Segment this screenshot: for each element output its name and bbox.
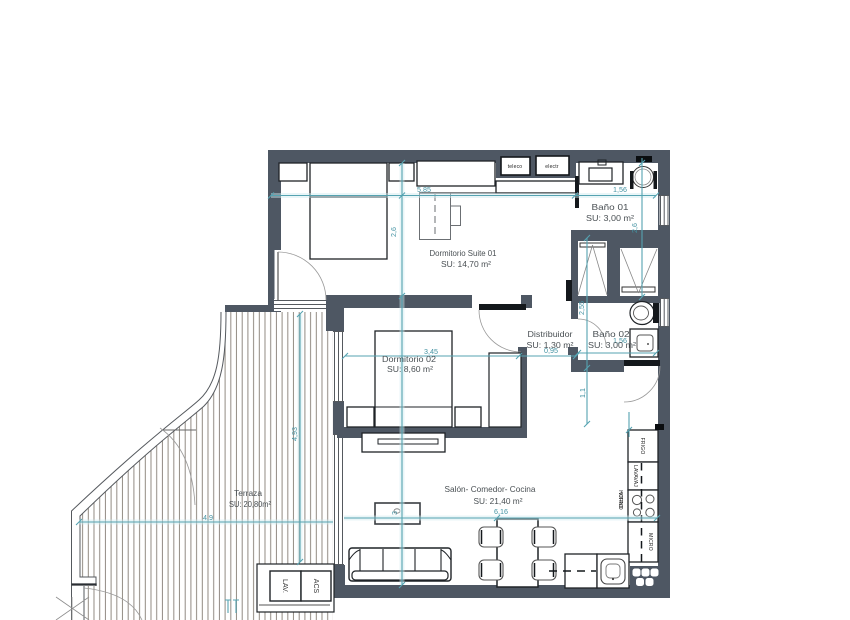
svg-text:SU: 3,00 m²: SU: 3,00 m² xyxy=(586,213,634,223)
svg-text:FRIGO: FRIGO xyxy=(639,438,645,455)
svg-text:Distribuidor: Distribuidor xyxy=(528,329,573,339)
svg-text:Terraza: Terraza xyxy=(234,488,262,498)
svg-text:4,93: 4,93 xyxy=(290,427,299,441)
svg-text:HORNO: HORNO xyxy=(617,490,623,510)
svg-text:2,6: 2,6 xyxy=(389,227,398,237)
svg-text:electr: electr xyxy=(545,164,559,170)
svg-text:SU: 3,00 m²: SU: 3,00 m² xyxy=(588,340,636,350)
svg-text:SU: 1,30 m²: SU: 1,30 m² xyxy=(527,340,574,350)
svg-text:SU: 14,70 m²: SU: 14,70 m² xyxy=(441,259,491,269)
svg-text:LAV.: LAV. xyxy=(281,579,288,593)
svg-text:Baño 02: Baño 02 xyxy=(593,329,630,339)
svg-text:5,85: 5,85 xyxy=(417,185,431,194)
svg-text:SU: 8,60 m²: SU: 8,60 m² xyxy=(387,364,433,374)
svg-text:Salón- Comedor- Cocina: Salón- Comedor- Cocina xyxy=(445,484,536,494)
svg-text:ACS: ACS xyxy=(312,579,319,594)
svg-text:6,16: 6,16 xyxy=(494,507,508,516)
svg-text:SU: 20,80m²: SU: 20,80m² xyxy=(229,499,271,509)
svg-text:1,1: 1,1 xyxy=(578,388,587,398)
svg-text:1,56: 1,56 xyxy=(613,185,627,194)
svg-text:LAVAVAJ: LAVAVAJ xyxy=(632,465,638,487)
svg-text:Baño 01: Baño 01 xyxy=(592,202,629,212)
svg-text:teleco: teleco xyxy=(508,164,523,170)
svg-text:Dormitorio 02: Dormitorio 02 xyxy=(382,354,436,364)
svg-text:SU: 21,40 m²: SU: 21,40 m² xyxy=(474,496,523,506)
svg-text:2,6: 2,6 xyxy=(630,223,639,233)
svg-text:MICRO: MICRO xyxy=(647,533,653,551)
svg-text:2,55: 2,55 xyxy=(577,301,586,315)
svg-text:3: 3 xyxy=(390,511,399,515)
svg-text:4,9: 4,9 xyxy=(203,513,213,522)
svg-text:Dormitorio Suite 01: Dormitorio Suite 01 xyxy=(430,248,497,258)
